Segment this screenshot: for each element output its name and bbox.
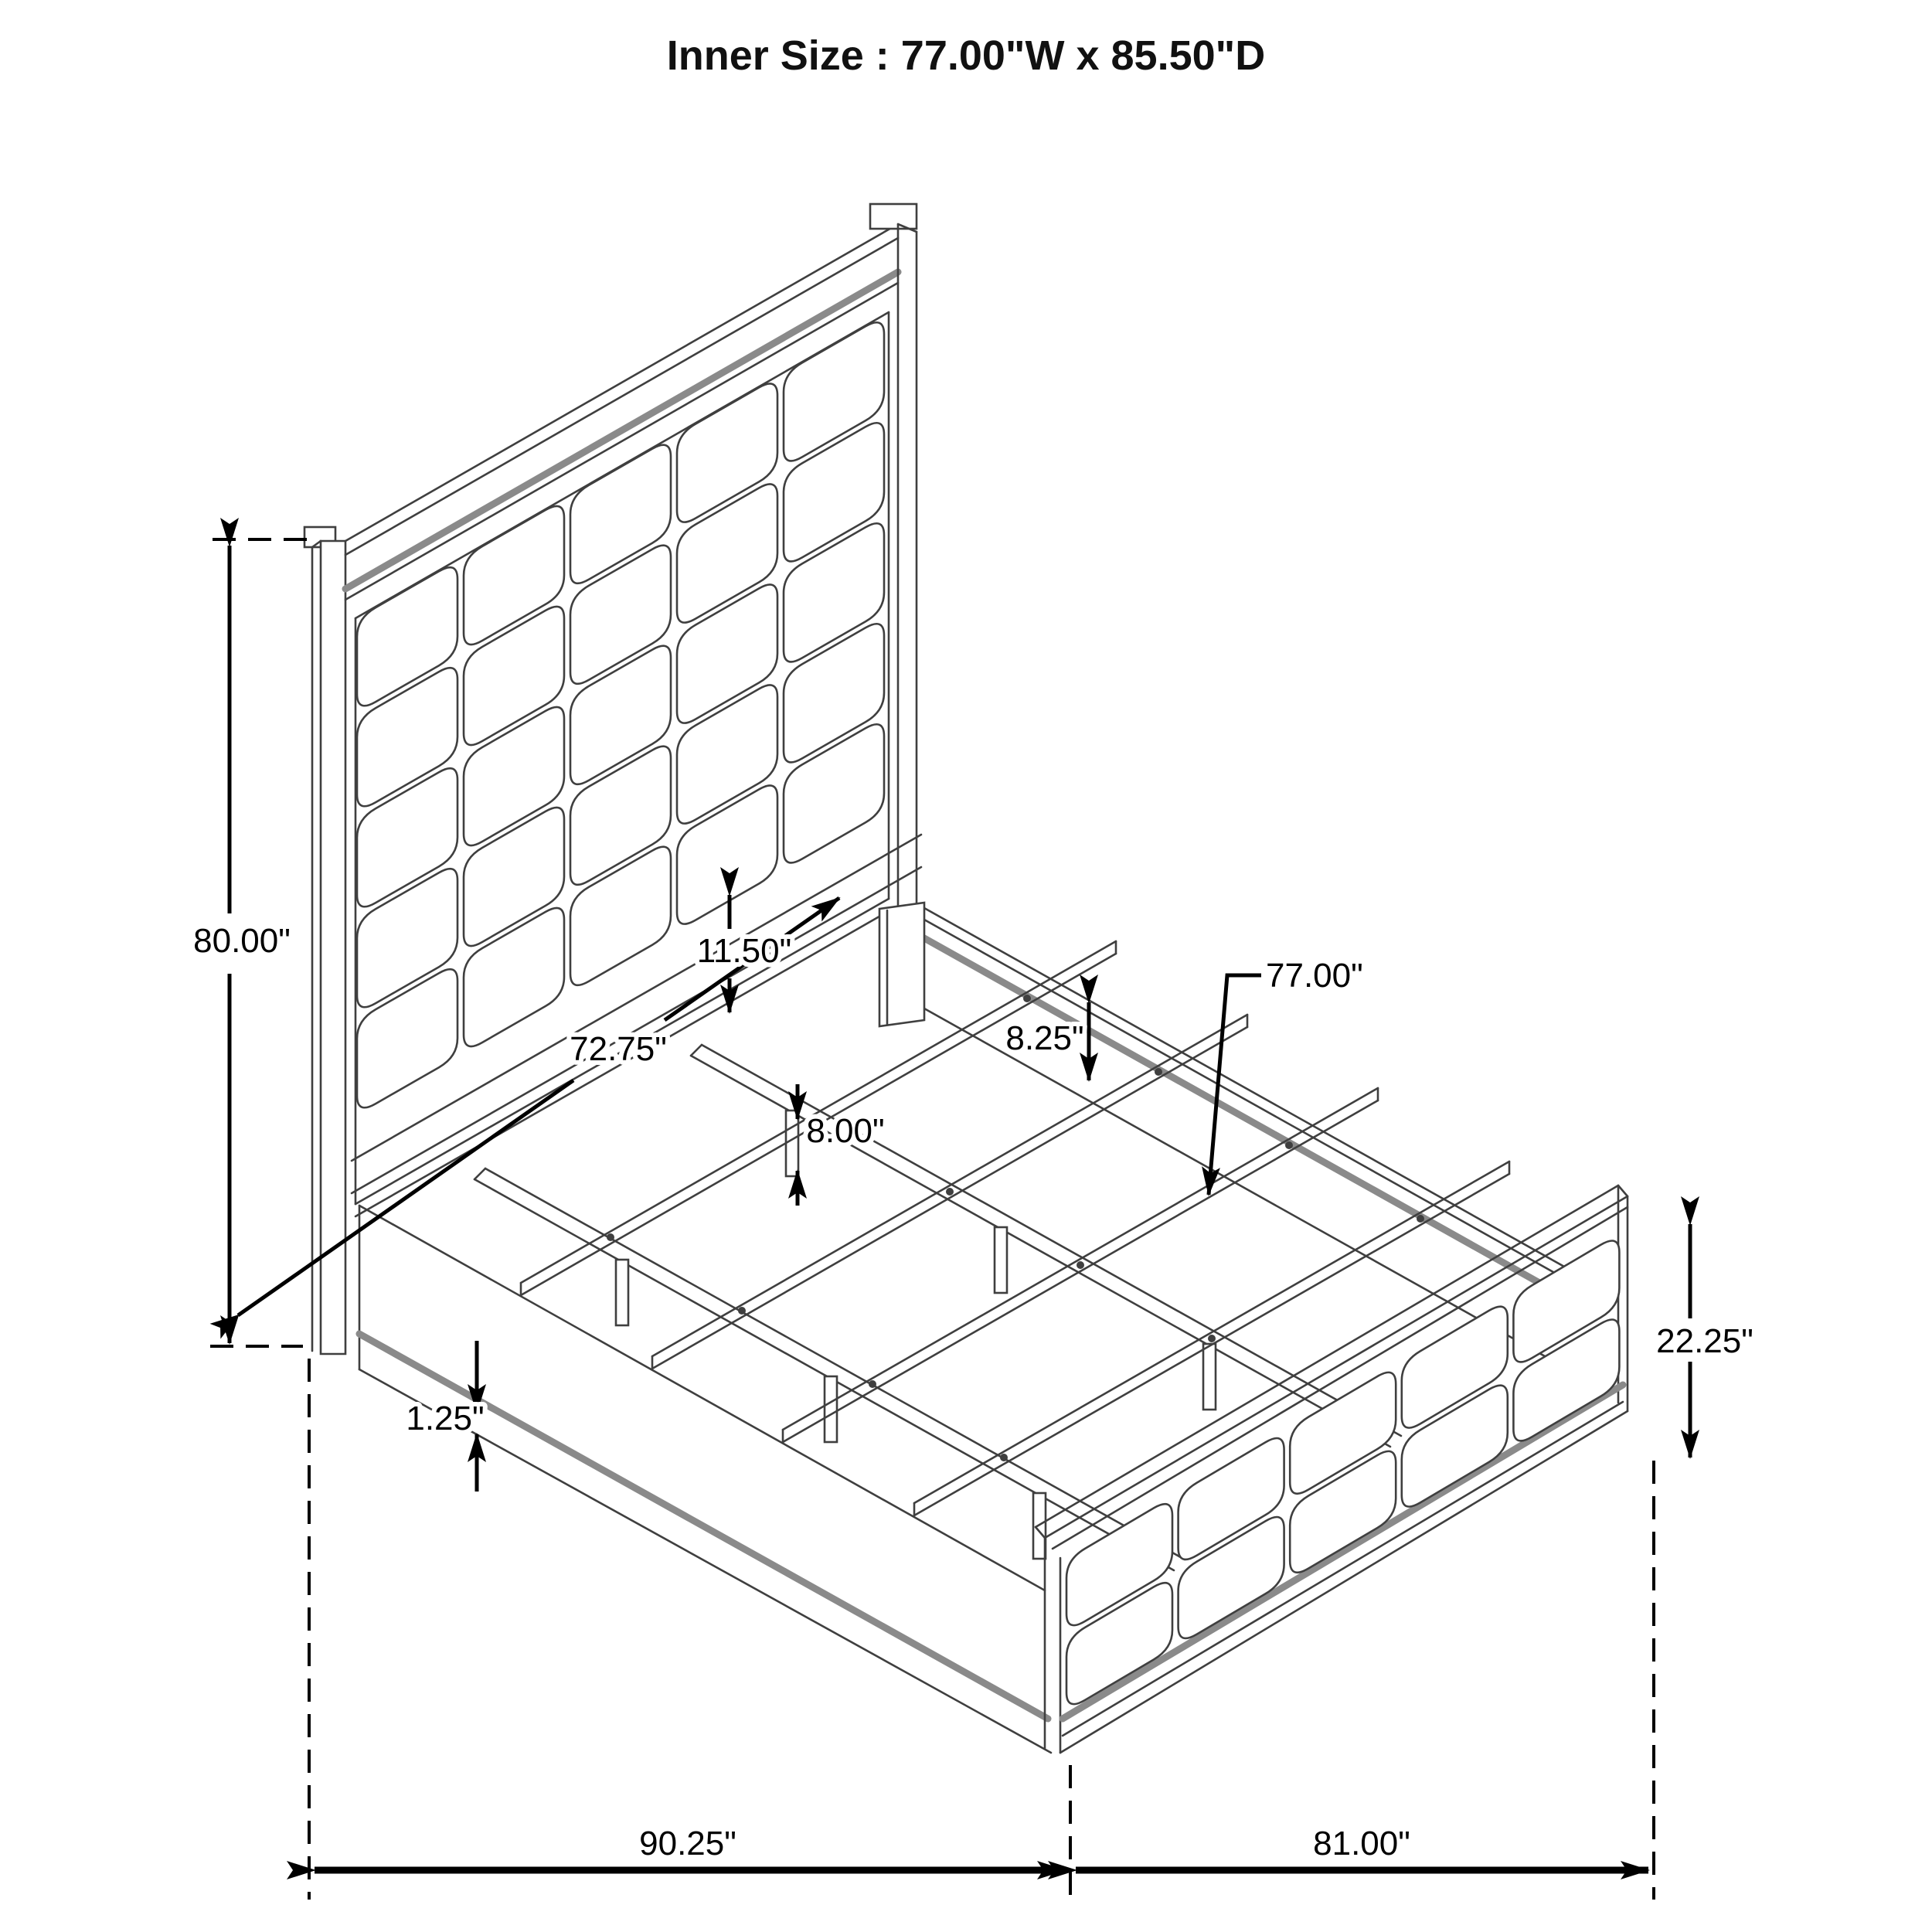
left-side-rail: [359, 1206, 1045, 1590]
tuft-pillow-grid: [357, 322, 884, 1107]
dim-label-overall-width: 81.00": [1313, 1825, 1410, 1862]
right-side-rail: [924, 908, 1578, 1274]
headboard-left-post: [321, 541, 345, 1354]
bed-dimension-diagram: 80.00" 72.75" 11.50" 8.25" 8.00" 1.25" 7…: [0, 0, 1932, 1932]
footboard: [1036, 1185, 1628, 1753]
diagram-title: Inner Size : 77.00"W x 85.50"D: [667, 32, 1266, 79]
dim-label-slat-length: 77.00": [1266, 957, 1363, 995]
footboard-tufted-panel: [1066, 1241, 1619, 1705]
dim-label-headboard-height: 80.00": [193, 922, 291, 960]
dim-leader-slat-length: [1209, 975, 1261, 1195]
dim-label-side-rail-height: 8.25": [1005, 1019, 1083, 1057]
dim-label-headboard-panel-gap: 11.50": [697, 932, 791, 970]
support-leg: [616, 1260, 628, 1325]
headboard-right-post-cap: [870, 204, 917, 229]
dim-line-inner-rail-length: [238, 1080, 573, 1315]
headboard: [304, 204, 917, 1354]
tuft-pillow-grid: [1066, 1241, 1619, 1705]
dim-label-inner-rail-length: 72.75": [570, 1030, 667, 1068]
support-leg: [825, 1376, 837, 1442]
dim-label-base-reveal: 1.25": [406, 1400, 484, 1437]
support-leg: [995, 1227, 1007, 1293]
support-leg: [1203, 1344, 1216, 1410]
dim-label-footboard-height: 22.25": [1656, 1322, 1753, 1360]
headboard-tufted-panel: [357, 322, 884, 1107]
support-leg: [786, 1111, 798, 1176]
diagram-page: 80.00" 72.75" 11.50" 8.25" 8.00" 1.25" 7…: [0, 0, 1932, 1932]
dim-label-support-leg-height: 8.00": [806, 1112, 884, 1150]
left-rail-base-stripe: [359, 1334, 1048, 1719]
bed-line-art: [304, 204, 1628, 1753]
center-support-beam: [702, 1045, 1401, 1436]
dim-label-overall-length: 90.25": [639, 1825, 736, 1862]
